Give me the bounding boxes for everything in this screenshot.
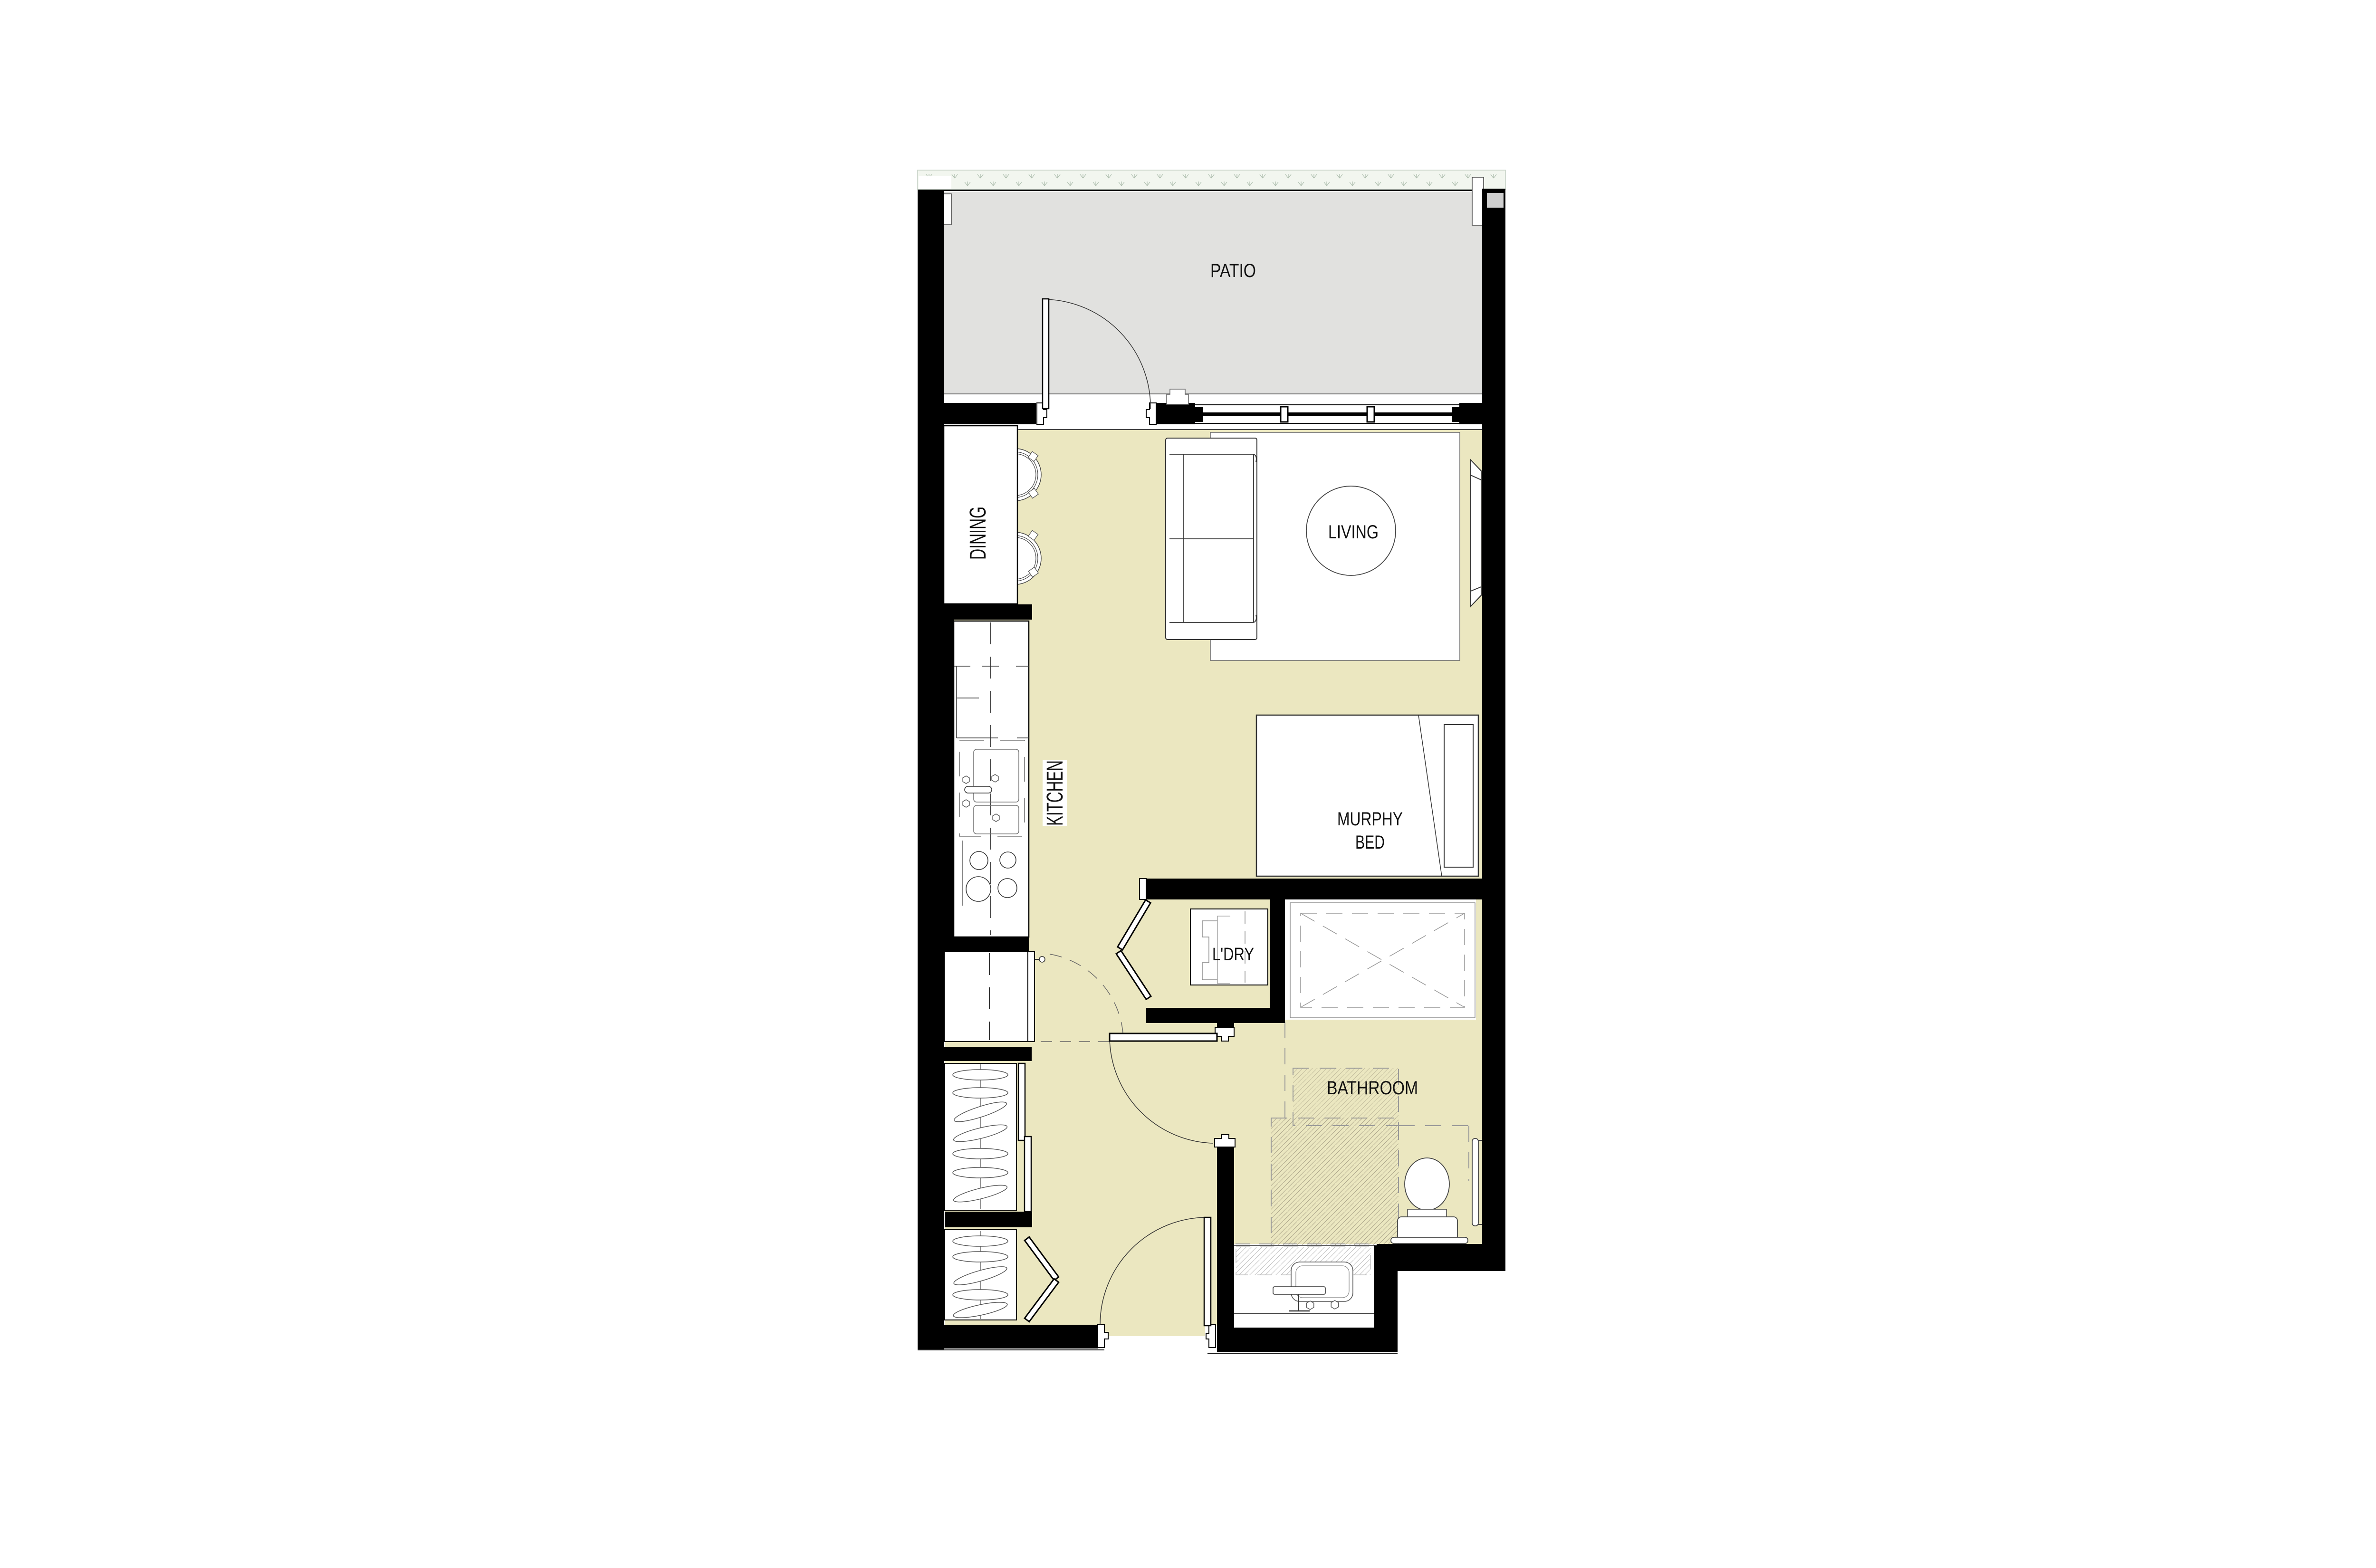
svg-text:L'DRY: L'DRY (1212, 945, 1254, 965)
svg-text:BED: BED (1355, 832, 1385, 853)
svg-text:PATIO: PATIO (1210, 260, 1256, 281)
svg-text:KITCHEN: KITCHEN (1043, 760, 1068, 826)
svg-text:LIVING: LIVING (1328, 522, 1379, 543)
svg-text:DINING: DINING (966, 507, 991, 560)
svg-text:MURPHY: MURPHY (1337, 809, 1403, 830)
svg-text:BATHROOM: BATHROOM (1327, 1078, 1418, 1099)
